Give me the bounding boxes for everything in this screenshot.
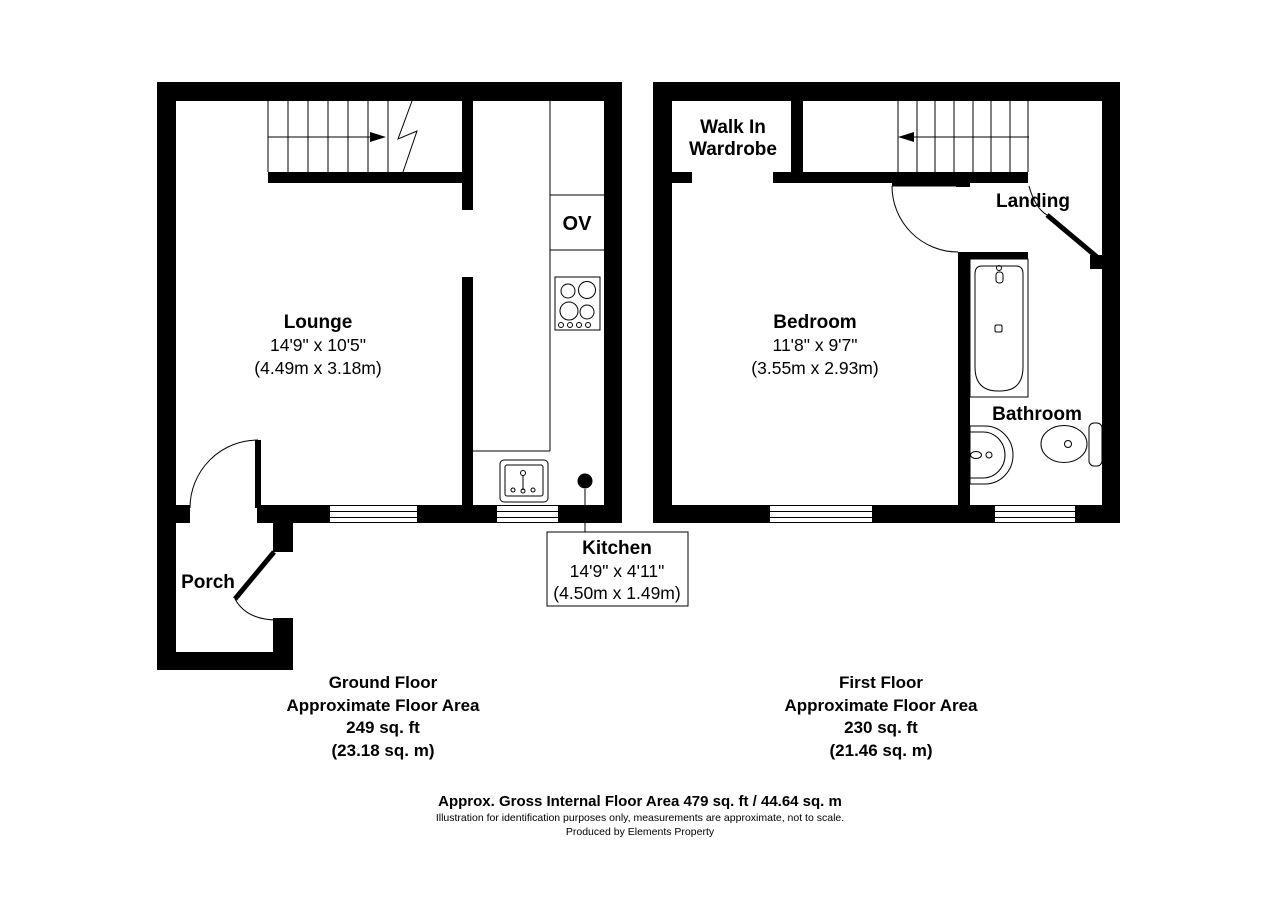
first-floor-area-text: First Floor Approximate Floor Area 230 s… [784,673,978,760]
stairs-break-line [398,101,417,172]
door-swing-arc [892,186,958,252]
producer-text: Produced by Elements Property [566,826,715,838]
door-jamb-stub [956,172,970,187]
basin-icon [970,426,1013,484]
porch-wall-segment [273,618,293,652]
landing-label: Landing [996,191,1070,212]
bedroom-dims-m: (3.55m x 2.93m) [751,358,878,378]
door-leaf [255,440,261,508]
first-area-line3: 230 sq. ft [844,718,918,737]
lounge-dims-m: (4.49m x 3.18m) [254,358,381,378]
floorplan-page: Kitchen 14'9" x 4'11" (4.50m x 1.49m) OV… [0,0,1280,905]
wardrobe-label-line1: Walk In [700,117,766,138]
wall-segment [462,101,473,210]
kitchen-window [497,506,558,523]
wardrobe-label-line2: Wardrobe [689,139,777,160]
ground-floor-plan: Kitchen 14'9" x 4'11" (4.50m x 1.49m) OV… [157,82,688,760]
door-leaf [235,552,274,599]
wall-segment [462,277,473,505]
wardrobe-wall [791,101,803,182]
door-leaf [1047,215,1097,257]
door-swing-arc [190,440,258,508]
ground-floor-stairs [268,101,417,172]
wall-segment [604,82,622,523]
oven-label: OV [563,213,593,235]
porch-entry-door [235,552,281,620]
lounge-label: Lounge [284,312,353,333]
first-floor-stairs [898,101,1029,172]
wall-segment [653,82,672,523]
first-area-line2: Approximate Floor Area [784,696,978,715]
wall-segment [417,505,497,523]
kitchen-dims-m: (4.50m x 1.49m) [553,583,680,603]
wall-segment [257,505,330,523]
gross-area-text: Approx. Gross Internal Floor Area 479 sq… [438,793,842,810]
kitchen-label: Kitchen [582,538,652,559]
door-swing-arc [235,599,281,620]
bathtub-icon [970,259,1028,397]
porch-to-lounge-door [190,440,261,508]
door-leaf [892,183,956,187]
kitchen-sink-icon [500,460,548,502]
wardrobe-wall-stub [672,172,692,183]
ground-area-line4: (23.18 sq. m) [332,741,435,760]
bedroom-window [770,506,872,523]
porch-wall-segment [157,652,293,670]
bathroom-window [995,506,1075,523]
ground-area-line2: Approximate Floor Area [286,696,480,715]
first-floor-plan: Walk In Wardrobe Landing Bedroom 11'8" x… [653,82,1120,760]
lounge-window [330,506,417,523]
stairs-down-arrow-icon [898,132,914,142]
wall-segment [872,505,995,523]
bedroom-door [892,183,958,253]
ground-floor-area-text: Ground Floor Approximate Floor Area 249 … [286,673,480,760]
bedroom-dims-ft: 11'8" x 9'7" [773,335,858,355]
stairs-up-arrow-icon [370,132,386,142]
wall-segment [176,505,190,523]
wall-segment [672,505,770,523]
callout-anchor-dot [578,474,593,489]
lounge-dims-ft: 14'9" x 10'5" [270,335,366,355]
wall-under-stairs [268,172,462,183]
footer: Approx. Gross Internal Floor Area 479 sq… [436,793,844,838]
wall-segment [157,82,622,101]
ground-area-line3: 249 sq. ft [346,718,420,737]
wall-segment [157,82,176,670]
ground-area-line1: Ground Floor [329,673,438,692]
wall-segment [1075,505,1102,523]
first-area-line1: First Floor [839,673,923,692]
disclaimer-text: Illustration for identification purposes… [436,812,844,824]
wall-segment [1102,82,1120,523]
wall-segment [653,82,1120,101]
wall-segment [558,505,622,523]
toilet-icon [1041,423,1102,466]
first-area-line4: (21.46 sq. m) [830,741,933,760]
hob-icon [555,277,600,330]
porch-wall-segment [273,505,293,552]
kitchen-counter [473,101,604,451]
kitchen-dims-ft: 14'9" x 4'11" [570,561,665,581]
floorplan-svg: Kitchen 14'9" x 4'11" (4.50m x 1.49m) OV… [0,0,1280,905]
bathroom-label: Bathroom [992,404,1082,425]
bedroom-label: Bedroom [773,312,856,333]
wall-under-stairs [773,172,1028,183]
bathroom-wall [958,252,970,505]
porch-label: Porch [181,572,235,593]
